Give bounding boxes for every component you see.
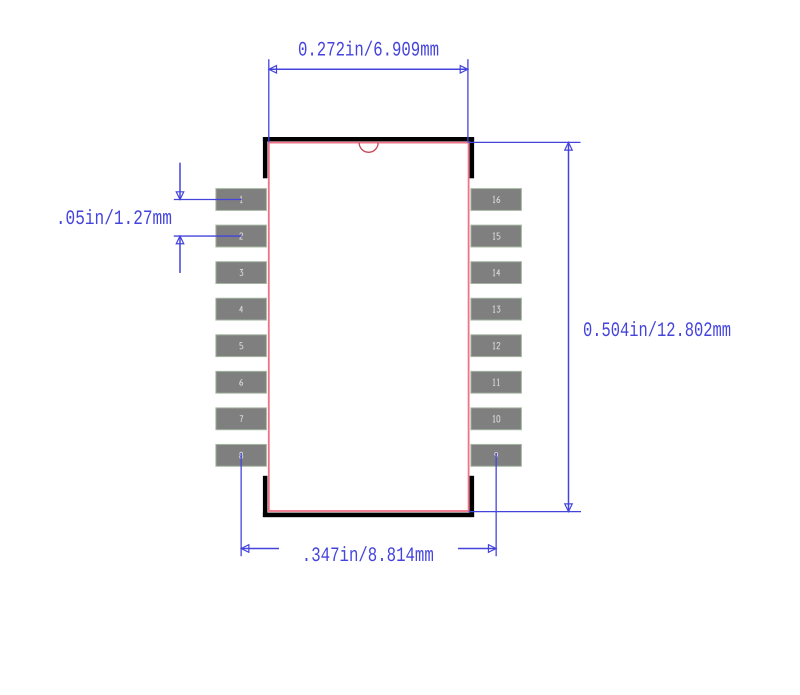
svg-text:.05in/1.27mm: .05in/1.27mm	[56, 208, 172, 231]
svg-text:0.504in/12.802mm: 0.504in/12.802mm	[583, 320, 731, 343]
svg-text:.347in/8.814mm: .347in/8.814mm	[302, 545, 434, 568]
svg-text:0.272in/6.909mm: 0.272in/6.909mm	[298, 39, 439, 62]
